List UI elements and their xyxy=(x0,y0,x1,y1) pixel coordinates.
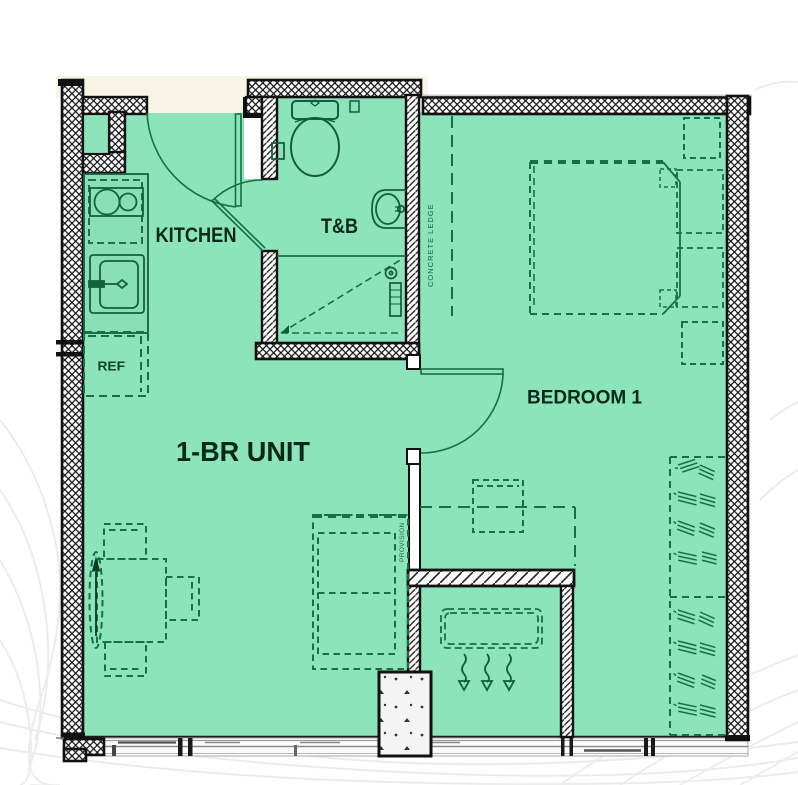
svg-text:1-BR UNIT: 1-BR UNIT xyxy=(176,436,310,467)
svg-text:T&B: T&B xyxy=(321,214,358,238)
svg-text:CONCRETE LEDGE: CONCRETE LEDGE xyxy=(426,203,435,287)
svg-text:PROVISION: PROVISION xyxy=(399,522,406,562)
svg-text:REF: REF xyxy=(98,360,126,374)
svg-text:KITCHEN: KITCHEN xyxy=(156,224,237,247)
svg-text:BEDROOM 1: BEDROOM 1 xyxy=(527,387,642,409)
